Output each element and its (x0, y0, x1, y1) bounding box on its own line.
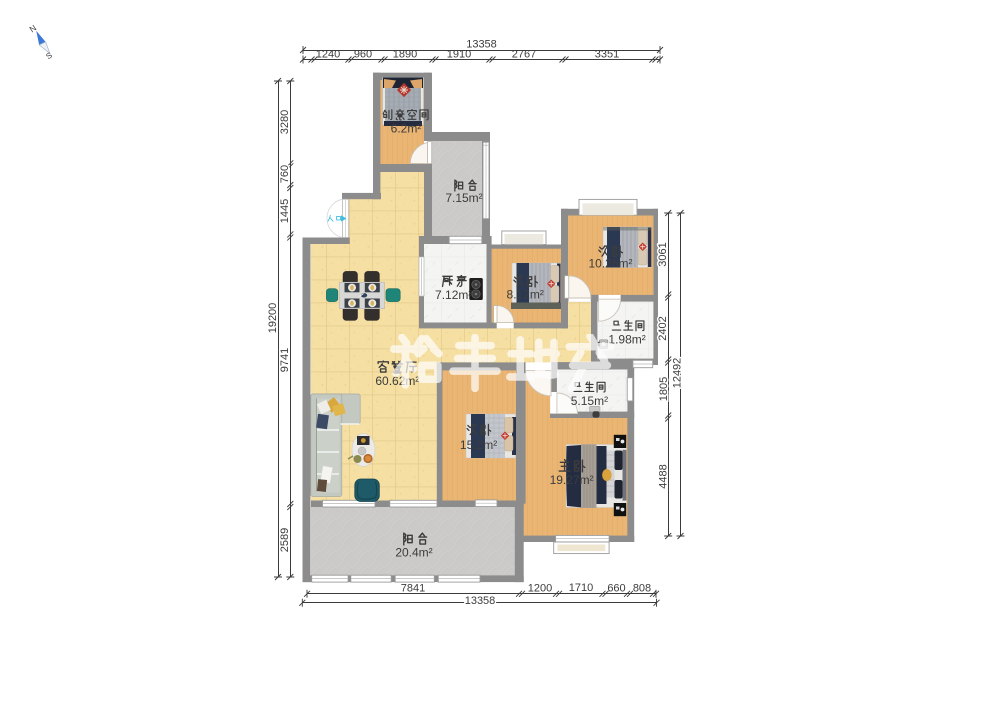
svg-text:10.26m²: 10.26m² (588, 257, 632, 271)
svg-text:8.12m²: 8.12m² (507, 287, 544, 301)
svg-text:20.4m²: 20.4m² (395, 545, 432, 559)
svg-text:19.27m²: 19.27m² (550, 473, 594, 487)
svg-text:808: 808 (633, 582, 651, 594)
svg-text:15.2m²: 15.2m² (460, 438, 497, 452)
svg-text:1445: 1445 (279, 199, 291, 223)
svg-text:2767: 2767 (512, 49, 536, 61)
svg-text:3280: 3280 (279, 110, 291, 134)
svg-text:3351: 3351 (595, 49, 619, 61)
svg-text:19200: 19200 (267, 303, 279, 334)
svg-text:1.98m²: 1.98m² (608, 333, 645, 347)
svg-text:1910: 1910 (447, 49, 471, 61)
svg-text:660: 660 (607, 582, 625, 594)
svg-text:1200: 1200 (528, 582, 552, 594)
svg-text:960: 960 (354, 49, 372, 61)
svg-text:7841: 7841 (401, 582, 425, 594)
svg-text:9741: 9741 (279, 348, 291, 372)
svg-text:5.15m²: 5.15m² (571, 394, 608, 408)
svg-text:7.12m²: 7.12m² (435, 288, 472, 302)
svg-text:1805: 1805 (658, 377, 670, 401)
svg-text:1710: 1710 (569, 582, 593, 594)
svg-text:1890: 1890 (393, 49, 417, 61)
svg-text:13358: 13358 (465, 595, 496, 607)
svg-text:2402: 2402 (657, 316, 669, 340)
svg-text:1240: 1240 (316, 49, 340, 61)
svg-text:3061: 3061 (657, 242, 669, 266)
svg-text:6.2m²: 6.2m² (391, 121, 422, 135)
svg-text:4488: 4488 (658, 464, 670, 488)
svg-text:2589: 2589 (279, 528, 291, 552)
svg-text:7.15m²: 7.15m² (445, 191, 482, 205)
svg-text:12492: 12492 (672, 358, 684, 389)
svg-text:760: 760 (279, 165, 291, 183)
